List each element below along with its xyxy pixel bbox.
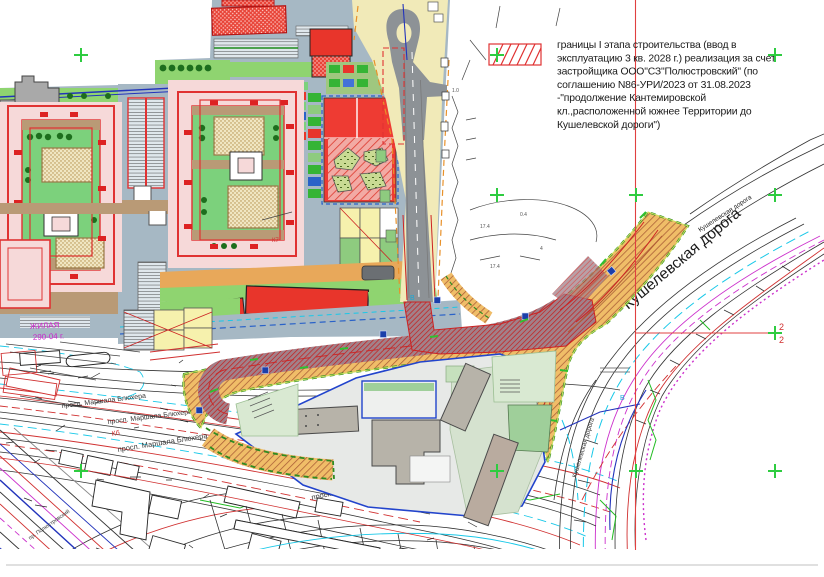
svg-text:границы I этапа строительства: границы I этапа строительства (ввод в [557, 40, 737, 51]
svg-text:290-04 г.: 290-04 г. [33, 331, 65, 342]
svg-text:эксплуатацию 3 кв. 2028 г.) ре: эксплуатацию 3 кв. 2028 г.) реализация з… [557, 53, 776, 64]
svg-text:4: 4 [540, 246, 543, 252]
svg-text:соглашению N86-УРИ/2023 от 31.: соглашению N86-УРИ/2023 от 31.08.2023 [557, 80, 751, 91]
svg-text:2: 2 [779, 322, 784, 332]
svg-text:кл.,расположенной южнее Террит: кл.,расположенной южнее Территории до [557, 107, 752, 118]
svg-text:17.4: 17.4 [480, 224, 490, 230]
svg-text:ЖИЛАЯ: ЖИЛАЯ [30, 320, 60, 331]
svg-text:17.4: 17.4 [490, 264, 500, 270]
svg-text:0.4: 0.4 [520, 212, 527, 218]
svg-text:Кб: Кб [111, 429, 120, 438]
svg-text:1.0: 1.0 [452, 88, 459, 94]
svg-text:-"продолжение Кантемировской: -"продолжение Кантемировской [557, 93, 706, 104]
svg-text:К7: К7 [272, 238, 279, 244]
svg-text:2: 2 [779, 335, 784, 345]
svg-text:Кушелевской дороги"): Кушелевской дороги") [557, 120, 660, 131]
svg-text:В: В [620, 395, 625, 402]
svg-text:застройщика ООО"СЗ"Полюстровск: застройщика ООО"СЗ"Полюстровский" (по [557, 67, 758, 78]
svg-text:В: В [410, 295, 415, 302]
